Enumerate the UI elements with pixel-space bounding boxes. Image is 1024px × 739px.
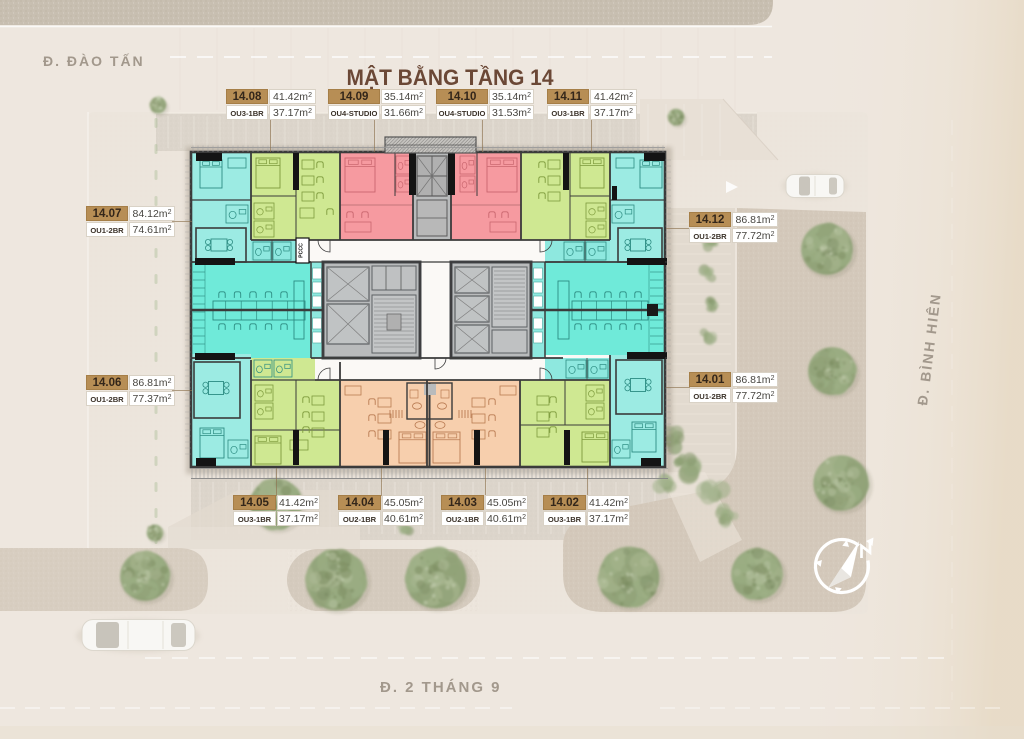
- svg-text:PCCC: PCCC: [299, 243, 305, 258]
